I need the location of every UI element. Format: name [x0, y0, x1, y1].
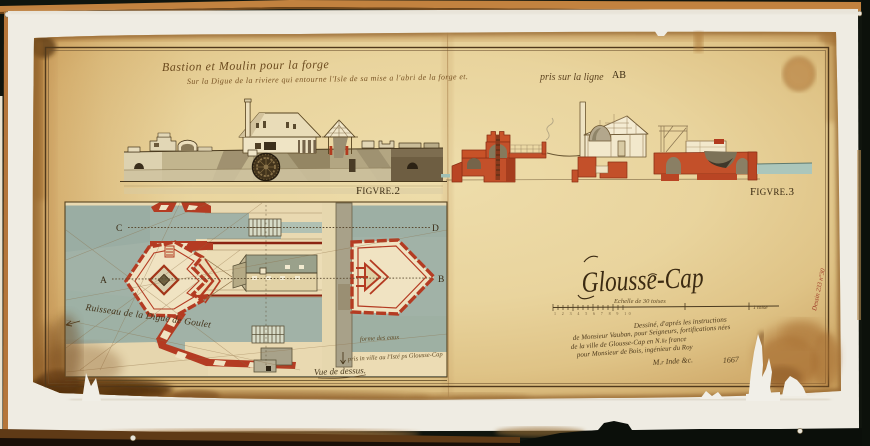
svg-text:B: B: [438, 275, 444, 285]
svg-text:1667: 1667: [723, 355, 741, 365]
svg-text:AB: AB: [612, 70, 626, 81]
svg-text:FIGVRE.3: FIGVRE.3: [750, 186, 794, 198]
svg-text:Echelle de 30 toises: Echelle de 30 toises: [613, 298, 666, 305]
svg-text:1 2 3 4 5 6 7 8 9 10: 1 2 3 4 5 6 7 8 9 10: [554, 311, 633, 316]
svg-text:A: A: [100, 276, 107, 286]
svg-text:FIGVRE.2: FIGVRE.2: [356, 185, 400, 197]
svg-text:C: C: [116, 224, 122, 234]
svg-text:Bastion et Moulin pour la: Bastion et Moulin pour la forge: [162, 57, 330, 74]
svg-text:Vue de dessus.: Vue de dessus.: [314, 365, 366, 377]
svg-text:1 toise: 1 toise: [753, 305, 768, 311]
svg-text:pris sur la ligne: pris sur la ligne: [539, 72, 604, 83]
svg-text:Glousse-Cap: Glousse-Cap: [581, 262, 704, 299]
